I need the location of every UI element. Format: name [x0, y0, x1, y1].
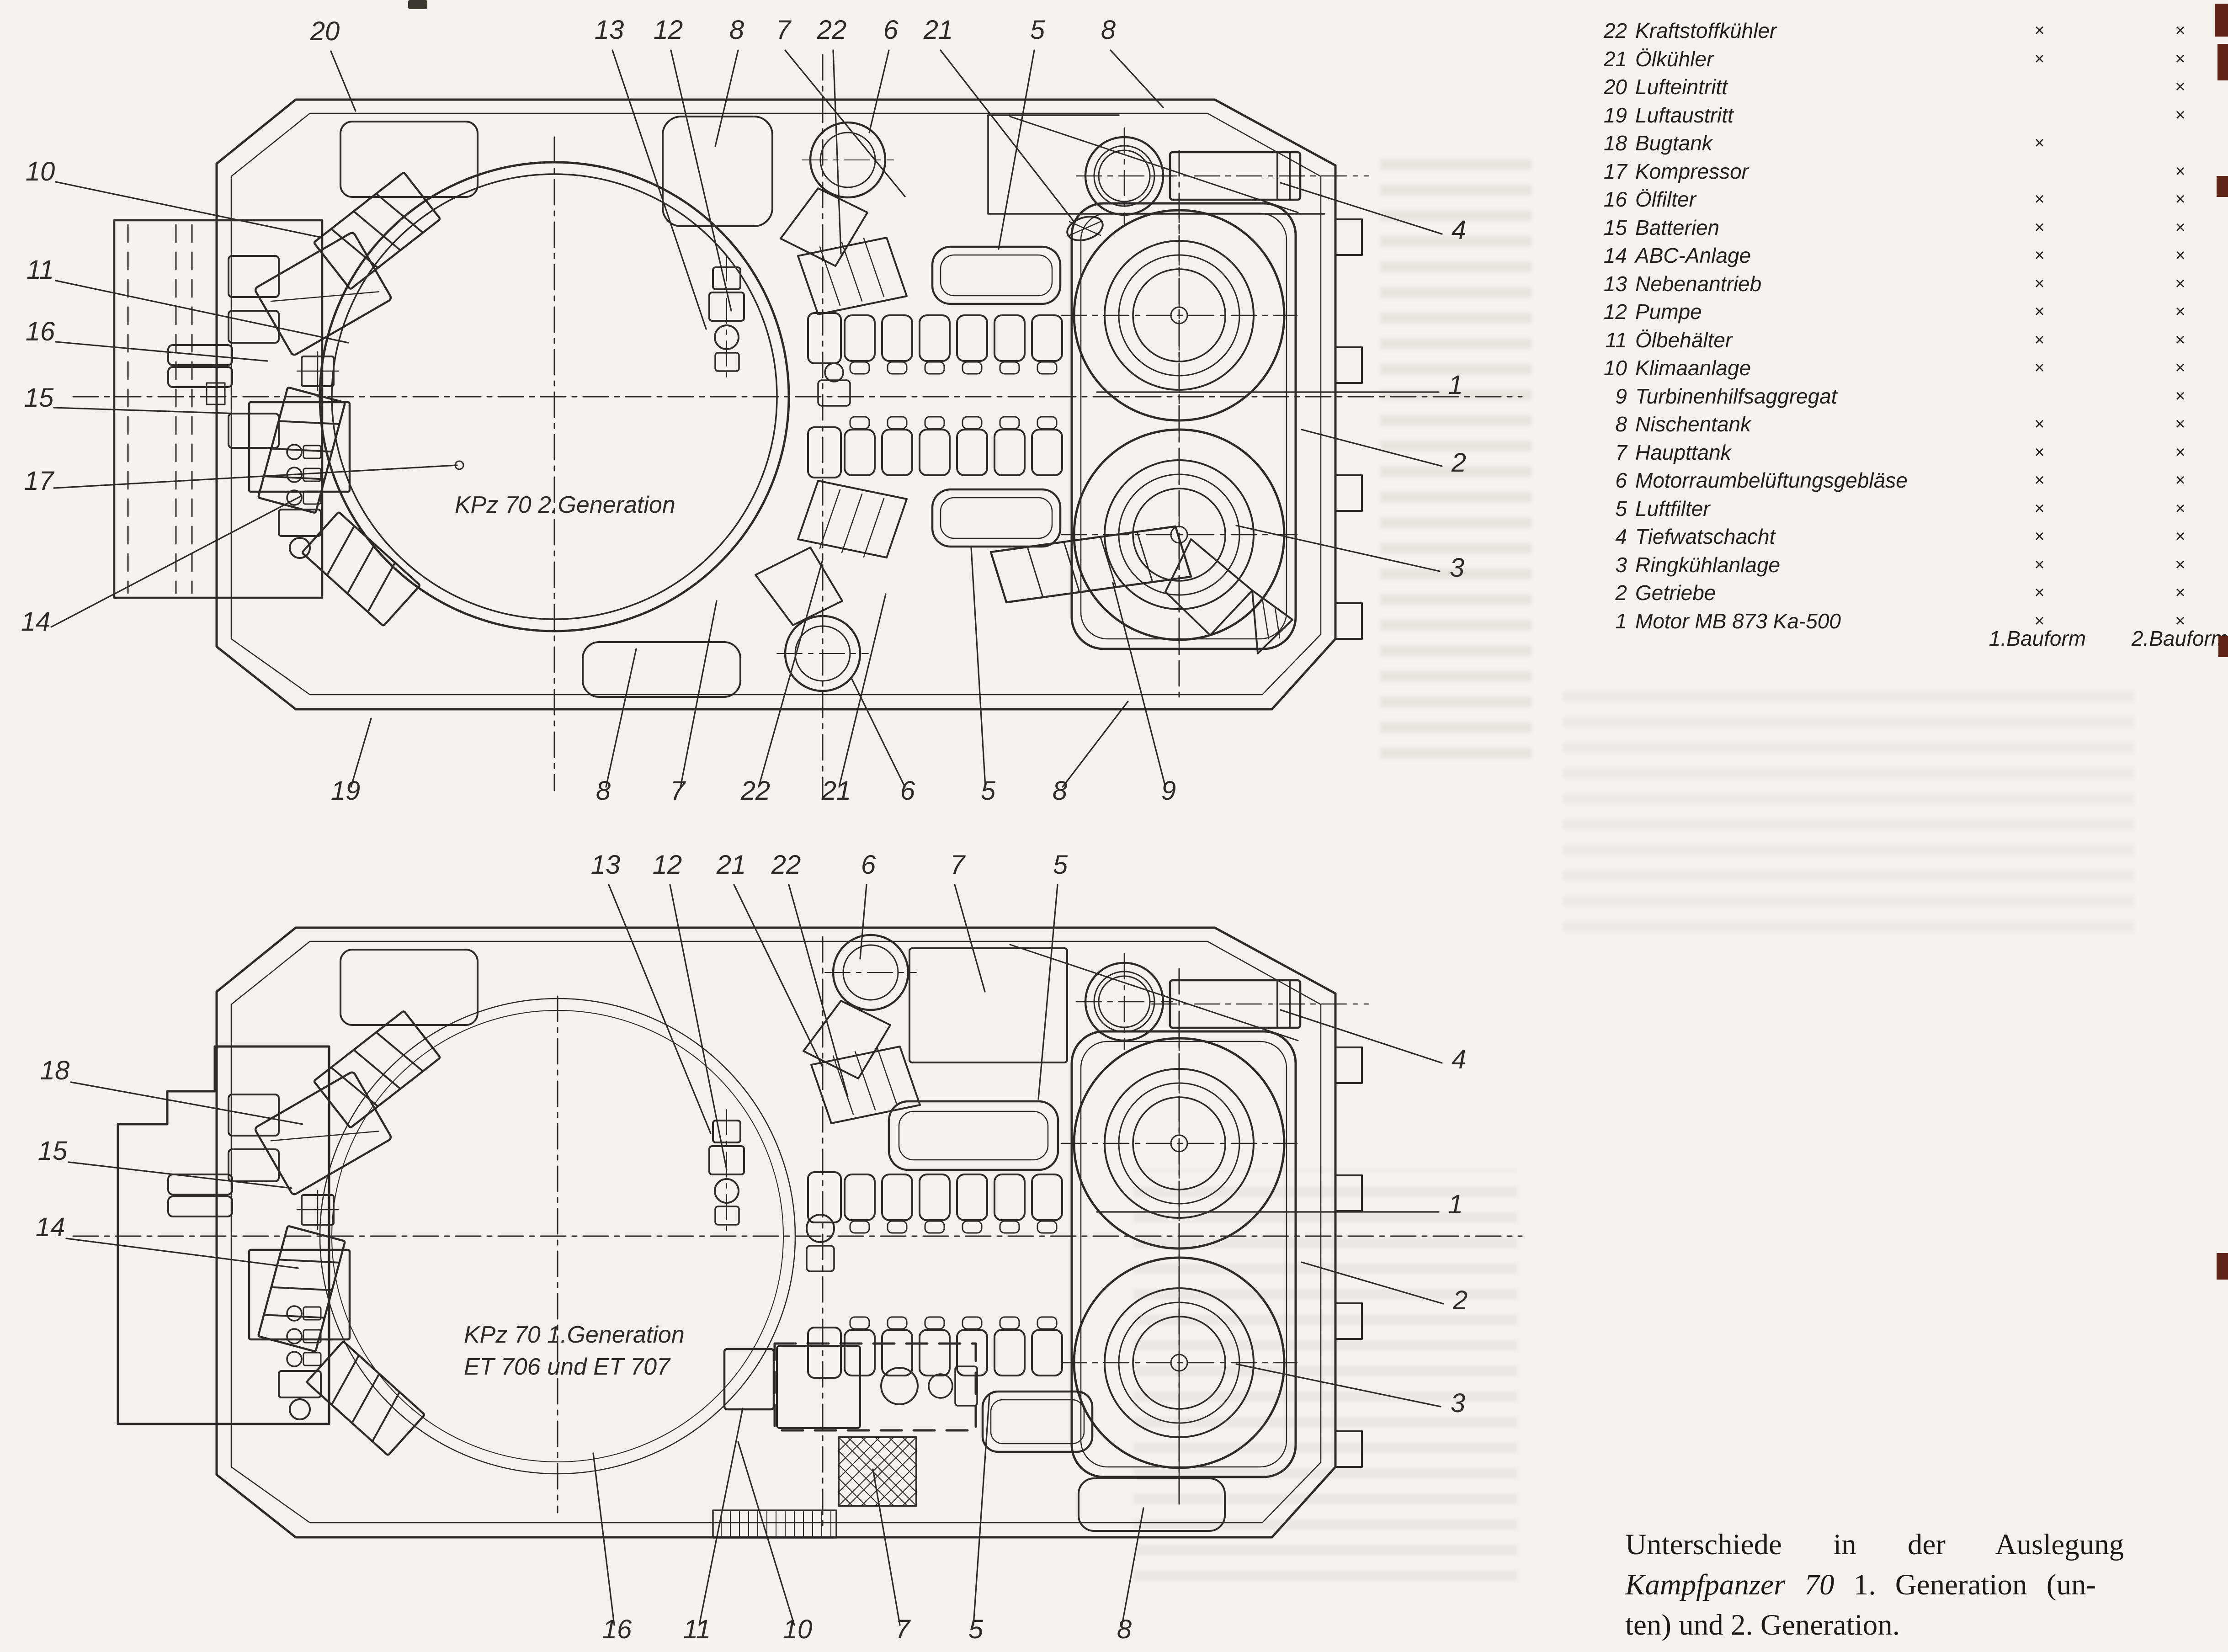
legend-mark-bauform1: × — [2029, 16, 2049, 45]
callout-label-12: 12 — [654, 15, 683, 45]
legend-row: 4Tiefwatschacht×× — [1554, 522, 2228, 551]
legend-mark-bauform2: × — [2170, 354, 2190, 382]
legend-item-number: 21 — [1554, 45, 1627, 73]
callout-label-10: 10 — [783, 1615, 813, 1644]
legend-item-number: 16 — [1554, 185, 1627, 213]
legend-mark-bauform2: × — [2170, 326, 2190, 354]
legend-mark-bauform2: × — [2170, 185, 2190, 213]
legend-item-label: Getriebe — [1635, 579, 1716, 607]
callout-label-10: 10 — [26, 157, 55, 186]
drawing-top-callouts: 2013128722621584123101116151714198722216… — [21, 15, 1466, 806]
callout-label-18: 18 — [40, 1056, 70, 1085]
callout-label-14: 14 — [36, 1212, 65, 1242]
callout-label-6: 6 — [900, 776, 915, 806]
legend-row: 12Pumpe×× — [1554, 297, 2228, 326]
legend-item-label: Kraftstoffkühler — [1635, 16, 1776, 45]
legend-item-number: 17 — [1554, 157, 1627, 186]
callout-label-3: 3 — [1450, 553, 1464, 583]
callout-label-11: 11 — [27, 255, 54, 285]
legend-mark-bauform2: × — [2170, 16, 2190, 45]
legend-mark-bauform2: × — [2170, 522, 2190, 551]
callout-label-13: 13 — [591, 850, 621, 880]
figure-label-gen1-line2: ET 706 und ET 707 — [464, 1354, 671, 1380]
legend-item-number: 3 — [1554, 551, 1627, 579]
legend-item-label: Luftfilter — [1635, 494, 1710, 523]
legend-mark-bauform1: × — [2029, 494, 2049, 523]
legend-mark-bauform1: × — [2029, 522, 2049, 551]
legend-item-label: Motorraumbelüftungsgebläse — [1635, 466, 1908, 494]
drawing-top-gen2 — [73, 55, 1522, 797]
legend-mark-bauform1: × — [2029, 466, 2049, 494]
legend-item-label: Bugtank — [1635, 129, 1712, 157]
caption-line3: ten) und 2. Generation. — [1625, 1605, 2197, 1645]
legend-row: 15Batterien×× — [1554, 213, 2228, 242]
legend-item-number: 20 — [1554, 73, 1627, 101]
legend-item-label: Ringkühlanlage — [1635, 551, 1780, 579]
legend-item-label: ABC-Anlage — [1635, 241, 1751, 270]
legend-mark-bauform1: × — [2029, 270, 2049, 298]
legend-item-number: 22 — [1554, 16, 1627, 45]
legend-item-number: 12 — [1554, 297, 1627, 326]
callout-label-4: 4 — [1452, 1045, 1466, 1074]
callout-label-12: 12 — [653, 850, 682, 880]
callout-label-8: 8 — [729, 15, 744, 45]
legend-item-label: Nischentank — [1635, 410, 1751, 438]
legend-item-label: Haupttank — [1635, 438, 1731, 467]
callout-label-8: 8 — [1053, 776, 1067, 806]
legend-row: 17Kompressor× — [1554, 157, 2228, 186]
legend-mark-bauform1: × — [2029, 579, 2049, 607]
legend-row: 11Ölbehälter×× — [1554, 326, 2228, 354]
callout-label-11: 11 — [683, 1615, 711, 1644]
legend-mark-bauform2: × — [2170, 494, 2190, 523]
callout-label-1: 1 — [1448, 370, 1463, 400]
legend-mark-bauform1: × — [2029, 438, 2049, 467]
legend-mark-bauform2: × — [2170, 382, 2190, 410]
legend-mark-bauform2: × — [2170, 157, 2190, 186]
legend-mark-bauform1: × — [2029, 410, 2049, 438]
legend-item-number: 7 — [1554, 438, 1627, 467]
callout-label-6: 6 — [861, 850, 876, 880]
legend-item-number: 5 — [1554, 494, 1627, 523]
callout-label-2: 2 — [1452, 1285, 1468, 1315]
callout-label-7: 7 — [895, 1615, 911, 1644]
legend-mark-bauform1: × — [2029, 297, 2049, 326]
legend-row: 7Haupttank×× — [1554, 438, 2228, 467]
callout-label-20: 20 — [310, 16, 340, 46]
legend-row: 21Ölkühler×× — [1554, 45, 2228, 73]
legend-item-number: 14 — [1554, 241, 1627, 270]
callout-label-5: 5 — [1053, 850, 1068, 880]
legend-mark-bauform1: × — [2029, 326, 2049, 354]
legend-mark-bauform2: × — [2170, 466, 2190, 494]
legend-row: 13Nebenantrieb×× — [1554, 270, 2228, 298]
callout-label-17: 17 — [24, 466, 55, 496]
legend-item-label: Ölfilter — [1635, 185, 1696, 213]
legend-item-label: Turbinenhilfsaggregat — [1635, 382, 1837, 410]
legend-mark-bauform1: × — [2029, 354, 2049, 382]
legend-mark-bauform1: × — [2029, 551, 2049, 579]
legend-item-label: Pumpe — [1635, 297, 1702, 326]
legend-item-label: Kompressor — [1635, 157, 1749, 186]
legend-mark-bauform2: × — [2170, 45, 2190, 73]
legend-footer-bauform2: 2.Bauform — [2121, 624, 2228, 653]
legend-item-label: Batterien — [1635, 213, 1719, 242]
callout-label-3: 3 — [1451, 1388, 1465, 1418]
figure-label-gen1-line1: KPz 70 1.Generation — [464, 1322, 685, 1348]
callout-label-16: 16 — [26, 317, 55, 346]
legend-item-number: 13 — [1554, 270, 1627, 298]
legend-item-number: 15 — [1554, 213, 1627, 242]
legend-mark-bauform2: × — [2170, 579, 2190, 607]
legend-row: 2Getriebe×× — [1554, 579, 2228, 607]
legend-item-number: 11 — [1554, 326, 1627, 354]
callout-label-5: 5 — [981, 776, 996, 806]
legend-mark-bauform1: × — [2029, 213, 2049, 242]
legend-mark-bauform2: × — [2170, 438, 2190, 467]
legend-row: 6Motorraumbelüftungsgebläse×× — [1554, 466, 2228, 494]
callout-label-1: 1 — [1448, 1190, 1463, 1219]
legend-item-label: Tiefwatschacht — [1635, 522, 1775, 551]
legend-mark-bauform2: × — [2170, 241, 2190, 270]
legend-mark-bauform2: × — [2170, 410, 2190, 438]
legend-row: 18Bugtank× — [1554, 129, 2228, 157]
legend-row: 16Ölfilter×× — [1554, 185, 2228, 213]
legend-item-number: 2 — [1554, 579, 1627, 607]
callout-label-9: 9 — [1161, 776, 1176, 806]
callout-label-15: 15 — [38, 1136, 68, 1166]
legend-mark-bauform2: × — [2170, 270, 2190, 298]
legend-mark-bauform1: × — [2029, 241, 2049, 270]
legend-item-label: Nebenantrieb — [1635, 270, 1761, 298]
legend-row: 19Luftaustritt× — [1554, 101, 2228, 129]
callout-label-2: 2 — [1451, 448, 1466, 478]
legend-row: 22Kraftstoffkühler×× — [1554, 16, 2228, 45]
callout-label-15: 15 — [24, 383, 54, 413]
callout-label-21: 21 — [716, 850, 746, 880]
callout-label-13: 13 — [595, 15, 624, 45]
figure-label-gen2: KPz 70 2.Generation — [455, 492, 675, 518]
legend-item-number: 6 — [1554, 466, 1627, 494]
callout-label-7: 7 — [776, 15, 792, 45]
legend-row: 10Klimaanlage×× — [1554, 354, 2228, 382]
legend-row: 8Nischentank×× — [1554, 410, 2228, 438]
legend-mark-bauform1: × — [2029, 45, 2049, 73]
legend-mark-bauform2: × — [2170, 551, 2190, 579]
callout-label-8: 8 — [1117, 1615, 1132, 1644]
legend-mark-bauform2: × — [2170, 101, 2190, 129]
legend-row: 3Ringkühlanlage×× — [1554, 551, 2228, 579]
legend-row: 9Turbinenhilfsaggregat× — [1554, 382, 2228, 410]
callout-label-14: 14 — [21, 607, 51, 637]
callout-label-22: 22 — [817, 15, 847, 45]
callout-label-4: 4 — [1452, 215, 1466, 245]
book-page: 2013128722621584123101116151714198722216… — [0, 0, 2228, 1652]
legend-footer-bauform1: 1.Bauform — [1983, 624, 2092, 653]
callout-label-7: 7 — [950, 850, 966, 880]
legend-row: 5Luftfilter×× — [1554, 494, 2228, 523]
legend-item-number: 10 — [1554, 354, 1627, 382]
legend-item-label: Lufteintritt — [1635, 73, 1728, 101]
callout-label-5: 5 — [1030, 15, 1045, 45]
callout-label-7: 7 — [670, 776, 686, 806]
legend-item-number: 9 — [1554, 382, 1627, 410]
legend-item-label: Ölbehälter — [1635, 326, 1732, 354]
caption-line2-rest: 1. Generation (un- — [1835, 1568, 2096, 1601]
legend-footer: 1.Bauform2.Bauform — [1554, 624, 2228, 653]
legend-item-label: Luftaustritt — [1635, 101, 1733, 129]
legend-row: 14ABC-Anlage×× — [1554, 241, 2228, 270]
callout-label-22: 22 — [740, 776, 771, 806]
drawing-bottom-callouts: 131221226751815144123161110758 — [36, 850, 1468, 1644]
legend-item-number: 18 — [1554, 129, 1627, 157]
callout-label-5: 5 — [968, 1615, 984, 1644]
parts-legend: 22Kraftstoffkühler××21Ölkühler××20Luftei… — [1554, 6, 2228, 678]
legend-mark-bauform1: × — [2029, 185, 2049, 213]
legend-mark-bauform2: × — [2170, 213, 2190, 242]
legend-mark-bauform2: × — [2170, 297, 2190, 326]
callout-label-21: 21 — [923, 15, 953, 45]
callout-label-19: 19 — [331, 776, 361, 806]
callout-label-22: 22 — [771, 850, 801, 880]
caption-italic-title: Kampfpanzer 70 — [1625, 1568, 1835, 1601]
legend-row: 20Lufteintritt× — [1554, 73, 2228, 101]
caption-line1: Unterschiede in der Auslegung — [1625, 1525, 2197, 1565]
callout-label-6: 6 — [883, 15, 899, 45]
legend-item-number: 8 — [1554, 410, 1627, 438]
callout-label-16: 16 — [602, 1615, 632, 1644]
caption-line2: Kampfpanzer 70 1. Generation (un- — [1625, 1565, 2197, 1605]
legend-mark-bauform1: × — [2029, 129, 2049, 157]
legend-item-label: Klimaanlage — [1635, 354, 1751, 382]
legend-item-label: Ölkühler — [1635, 45, 1713, 73]
drawing-bottom-gen1 — [73, 928, 1522, 1538]
legend-mark-bauform2: × — [2170, 73, 2190, 101]
legend-item-number: 19 — [1554, 101, 1627, 129]
callout-label-8: 8 — [1101, 15, 1116, 45]
callout-label-21: 21 — [821, 776, 851, 806]
figure-caption: Unterschiede in der Auslegung Kampfpanze… — [1625, 1525, 2197, 1645]
callout-label-8: 8 — [596, 776, 611, 806]
legend-item-number: 4 — [1554, 522, 1627, 551]
